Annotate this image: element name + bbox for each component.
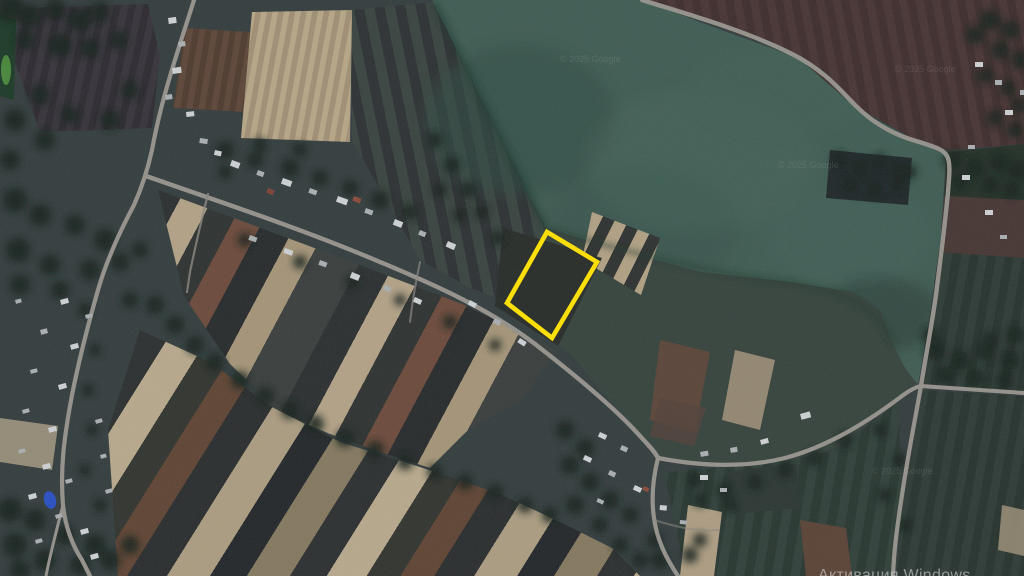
- satellite-imagery[interactable]: © 2025 Google © 2025 Google © 2025 Googl…: [0, 0, 1024, 576]
- map-viewport[interactable]: © 2025 Google © 2025 Google © 2025 Googl…: [0, 0, 1024, 576]
- image-grain-overlay: [0, 0, 1024, 576]
